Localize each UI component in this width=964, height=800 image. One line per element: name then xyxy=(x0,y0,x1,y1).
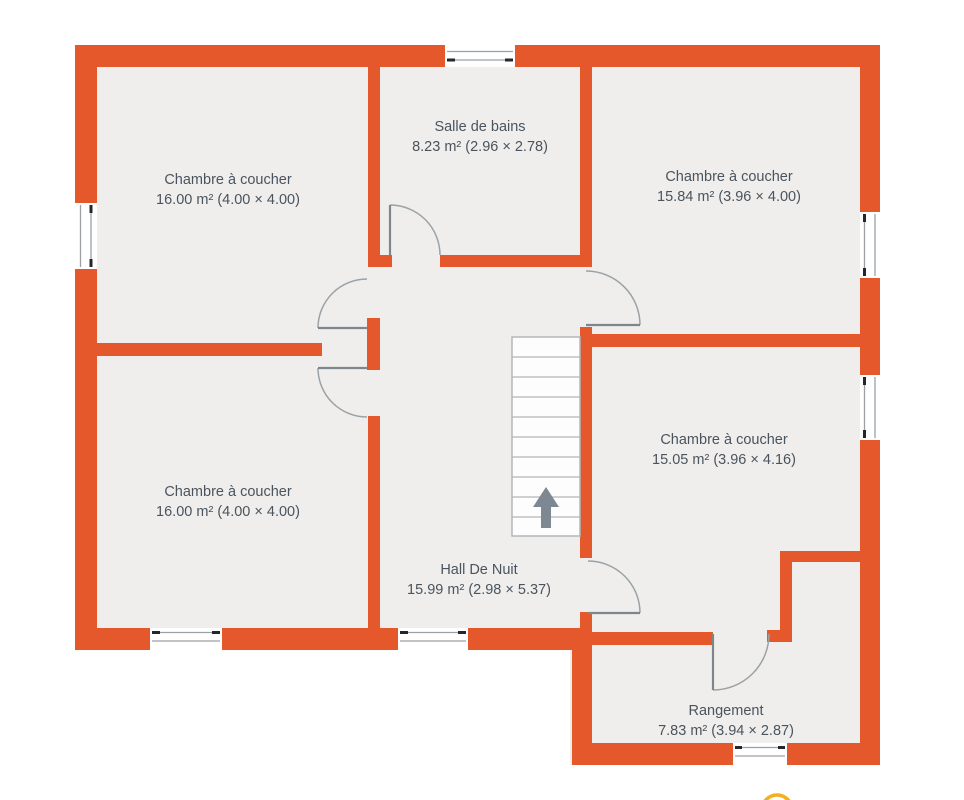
room-label-bedroom-bottom-left: Chambre à coucher 16.00 m² (4.00 × 4.00) xyxy=(156,482,300,522)
room-name: Rangement xyxy=(658,701,794,721)
room-dimensions: 7.83 m² (3.94 × 2.87) xyxy=(658,721,794,741)
room-label-bathroom: Salle de bains 8.23 m² (2.96 × 2.78) xyxy=(412,117,548,157)
room-name: Chambre à coucher xyxy=(652,430,796,450)
room-name: Chambre à coucher xyxy=(156,170,300,190)
camera-marker[interactable] xyxy=(762,795,792,800)
window xyxy=(860,212,880,278)
window xyxy=(75,203,97,269)
window xyxy=(860,375,880,440)
floor-plan: Chambre à coucher 16.00 m² (4.00 × 4.00)… xyxy=(0,0,964,800)
room-dimensions: 16.00 m² (4.00 × 4.00) xyxy=(156,190,300,210)
room-name: Hall De Nuit xyxy=(407,560,551,580)
room-label-bedroom-top-right: Chambre à coucher 15.84 m² (3.96 × 4.00) xyxy=(657,167,801,207)
room-label-storage: Rangement 7.83 m² (3.94 × 2.87) xyxy=(658,701,794,741)
room-name: Salle de bains xyxy=(412,117,548,137)
room-label-bedroom-top-left: Chambre à coucher 16.00 m² (4.00 × 4.00) xyxy=(156,170,300,210)
room-dimensions: 15.99 m² (2.98 × 5.37) xyxy=(407,580,551,600)
room-dimensions: 15.84 m² (3.96 × 4.00) xyxy=(657,187,801,207)
window xyxy=(398,628,468,650)
room-dimensions: 8.23 m² (2.96 × 2.78) xyxy=(412,137,548,157)
window xyxy=(445,45,515,67)
room-dimensions: 15.05 m² (3.96 × 4.16) xyxy=(652,450,796,470)
window xyxy=(733,743,787,765)
window xyxy=(150,628,222,650)
room-name: Chambre à coucher xyxy=(657,167,801,187)
room-dimensions: 16.00 m² (4.00 × 4.00) xyxy=(156,502,300,522)
room-label-night-hall: Hall De Nuit 15.99 m² (2.98 × 5.37) xyxy=(407,560,551,600)
staircase xyxy=(512,337,580,536)
room-name: Chambre à coucher xyxy=(156,482,300,502)
room-label-bedroom-mid-right: Chambre à coucher 15.05 m² (3.96 × 4.16) xyxy=(652,430,796,470)
